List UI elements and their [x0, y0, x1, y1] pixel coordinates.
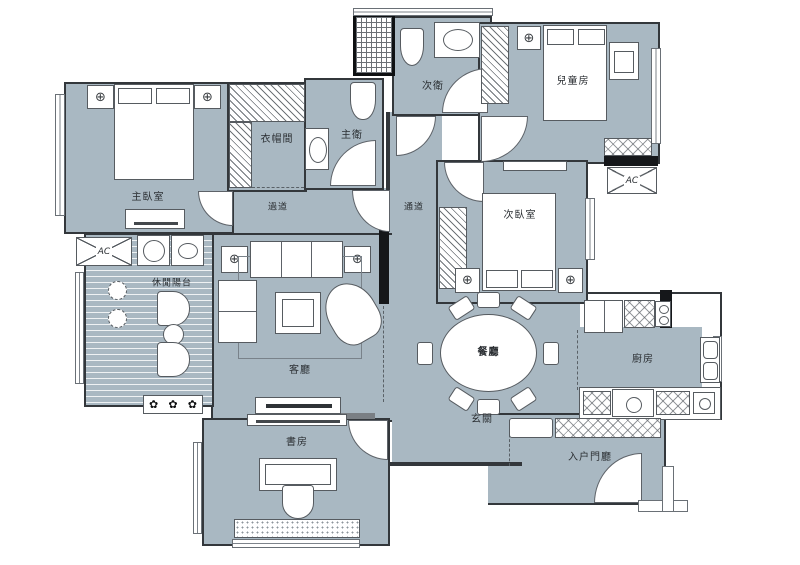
ceiling-light-symbol: ⊕ [455, 268, 480, 293]
window [75, 272, 84, 384]
plant-flower: ✿ [168, 398, 177, 411]
kitchen-sink-counter [700, 337, 720, 383]
sink-bowl [699, 398, 711, 410]
entry-step [662, 466, 674, 512]
shower-cabin [353, 14, 395, 76]
pillow [547, 29, 574, 45]
wall-segment [379, 228, 389, 304]
kitchen-corner-sink [693, 392, 715, 414]
cabinet [604, 138, 652, 156]
stove-burner [626, 397, 642, 413]
foyer-bench [509, 418, 553, 438]
lounge-chair [157, 342, 190, 377]
opening-dashed [577, 330, 578, 390]
room-label-balcony: 休閒陽台 [152, 280, 192, 289]
washing-machine [137, 235, 170, 266]
study-rug [234, 519, 360, 538]
shoe-cabinet [555, 418, 661, 438]
dining-chair [543, 342, 559, 365]
room-label-master-bedroom: 主臥室 [132, 193, 165, 203]
dining-table: 餐廳 [440, 314, 537, 392]
kitchen-counter [624, 300, 655, 328]
pillow [156, 88, 190, 104]
wardrobe-shelving [229, 122, 252, 188]
bed-second [482, 193, 556, 291]
washbasin [305, 128, 329, 170]
toilet [350, 82, 376, 120]
window [353, 8, 493, 16]
sink-bowl [659, 316, 669, 325]
pillow [578, 29, 605, 45]
pillow [521, 270, 553, 288]
dining-chair [477, 292, 500, 308]
basin-bowl [309, 137, 327, 163]
window [585, 198, 595, 260]
sink-basin [703, 362, 718, 380]
bed-master [114, 84, 194, 180]
room-label-master-bath: 主衛 [341, 131, 363, 141]
ac-unit-left: AC [76, 237, 132, 266]
wall-segment [386, 112, 390, 190]
desk-top [265, 464, 331, 485]
stove [612, 389, 654, 417]
kitchen-small-sink [655, 301, 671, 327]
study-cabinet [247, 414, 347, 426]
wardrobe-kids [481, 26, 509, 104]
toilet [400, 28, 424, 66]
kitchen-counter [656, 391, 690, 415]
window [193, 442, 202, 534]
room-label-kitchen: 廚房 [632, 355, 654, 365]
coffee-table [275, 292, 321, 334]
study-chair [282, 485, 314, 519]
pillow [486, 270, 518, 288]
plant-flower: ✿ [188, 398, 197, 411]
sink-bowl [659, 305, 669, 314]
opening-dashed [383, 306, 384, 402]
balcony-sink [171, 235, 204, 266]
desk-kids [609, 42, 639, 80]
sofa-main [250, 241, 343, 278]
plant-pot [108, 281, 127, 300]
sofa-loveseat [218, 280, 257, 343]
ac-label: AC [96, 247, 112, 257]
washer-drum [143, 240, 165, 262]
plant-pot [108, 309, 127, 328]
ac-unit-right: AC [607, 167, 657, 194]
dresser-second-bedroom [503, 161, 567, 171]
room-label-living: 客廳 [289, 366, 311, 376]
room-label-second-bedroom: 次臥室 [504, 211, 537, 221]
sink-basin [703, 341, 718, 359]
tv-cabinet [255, 397, 341, 414]
plant-flower: ✿ [149, 398, 158, 411]
basin-bowl [443, 29, 473, 51]
room-label-corridor-mid: 通道 [404, 204, 424, 213]
planter-box: ✿✿✿ [143, 395, 203, 414]
room-label-cloakroom: 衣帽間 [261, 135, 294, 145]
kitchen-counter [583, 391, 611, 415]
room-label-second-bath: 次衛 [422, 82, 444, 92]
window [232, 539, 360, 548]
pillow [118, 88, 152, 104]
room-label-foyer: 入户門廳 [568, 453, 612, 463]
lounge-chair [157, 291, 190, 326]
room-label-study: 書房 [286, 438, 308, 448]
dining-chair [417, 342, 433, 365]
coffee-table-top [282, 299, 314, 327]
fridge [584, 300, 623, 333]
room-label-kids-room: 兒童房 [557, 77, 590, 87]
washbasin [434, 22, 480, 58]
dining-chair [477, 399, 500, 415]
ceiling-light-symbol: ⊕ [517, 26, 541, 50]
opening-dashed [252, 187, 304, 188]
window [55, 94, 65, 216]
ceiling-light-symbol: ⊕ [194, 85, 221, 109]
ac-label: AC [624, 176, 640, 186]
wall-segment [604, 156, 658, 166]
dresser-master [125, 209, 185, 229]
sink-bowl [178, 243, 198, 259]
chair [614, 51, 634, 73]
bed-kids [543, 25, 607, 121]
ceiling-light-symbol: ⊕ [558, 268, 583, 293]
room-label-dining: 餐廳 [478, 348, 500, 358]
ceiling-light-symbol: ⊕ [87, 85, 114, 109]
room-label-entry-hall: 玄關 [471, 415, 493, 425]
window [651, 48, 661, 144]
wall-segment [390, 462, 522, 466]
floor-plan: ⊕ ⊕ ⊕ ⊕ ⊕ ⊕ ⊕ [0, 0, 800, 565]
room-label-corridor-west: 過道 [268, 204, 288, 213]
wardrobe-shelving [229, 84, 305, 122]
